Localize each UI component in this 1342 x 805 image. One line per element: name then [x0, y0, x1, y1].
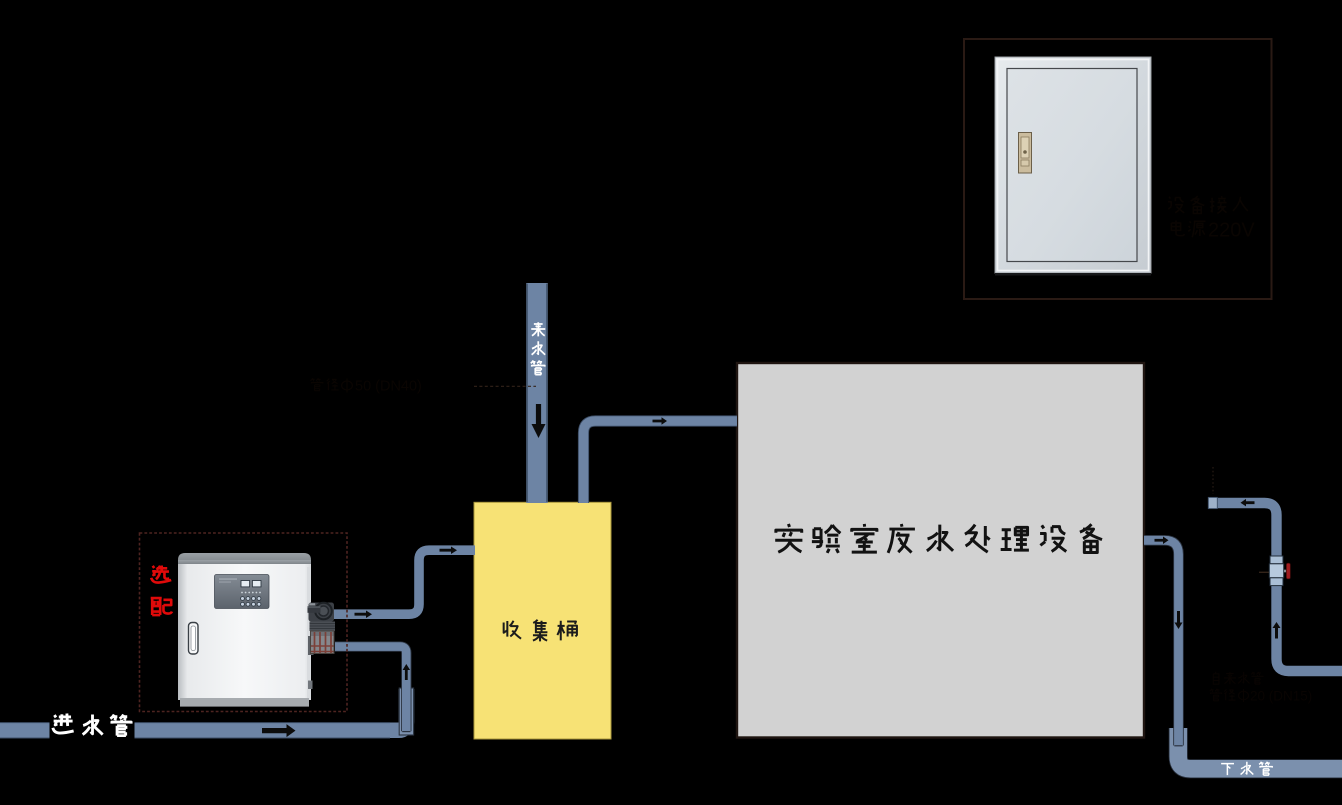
- svg-text:220V: 220V: [1208, 220, 1255, 242]
- svg-text:50 (DN40): 50 (DN40): [355, 379, 422, 395]
- svg-text:20 (DN15): 20 (DN15): [1250, 689, 1312, 704]
